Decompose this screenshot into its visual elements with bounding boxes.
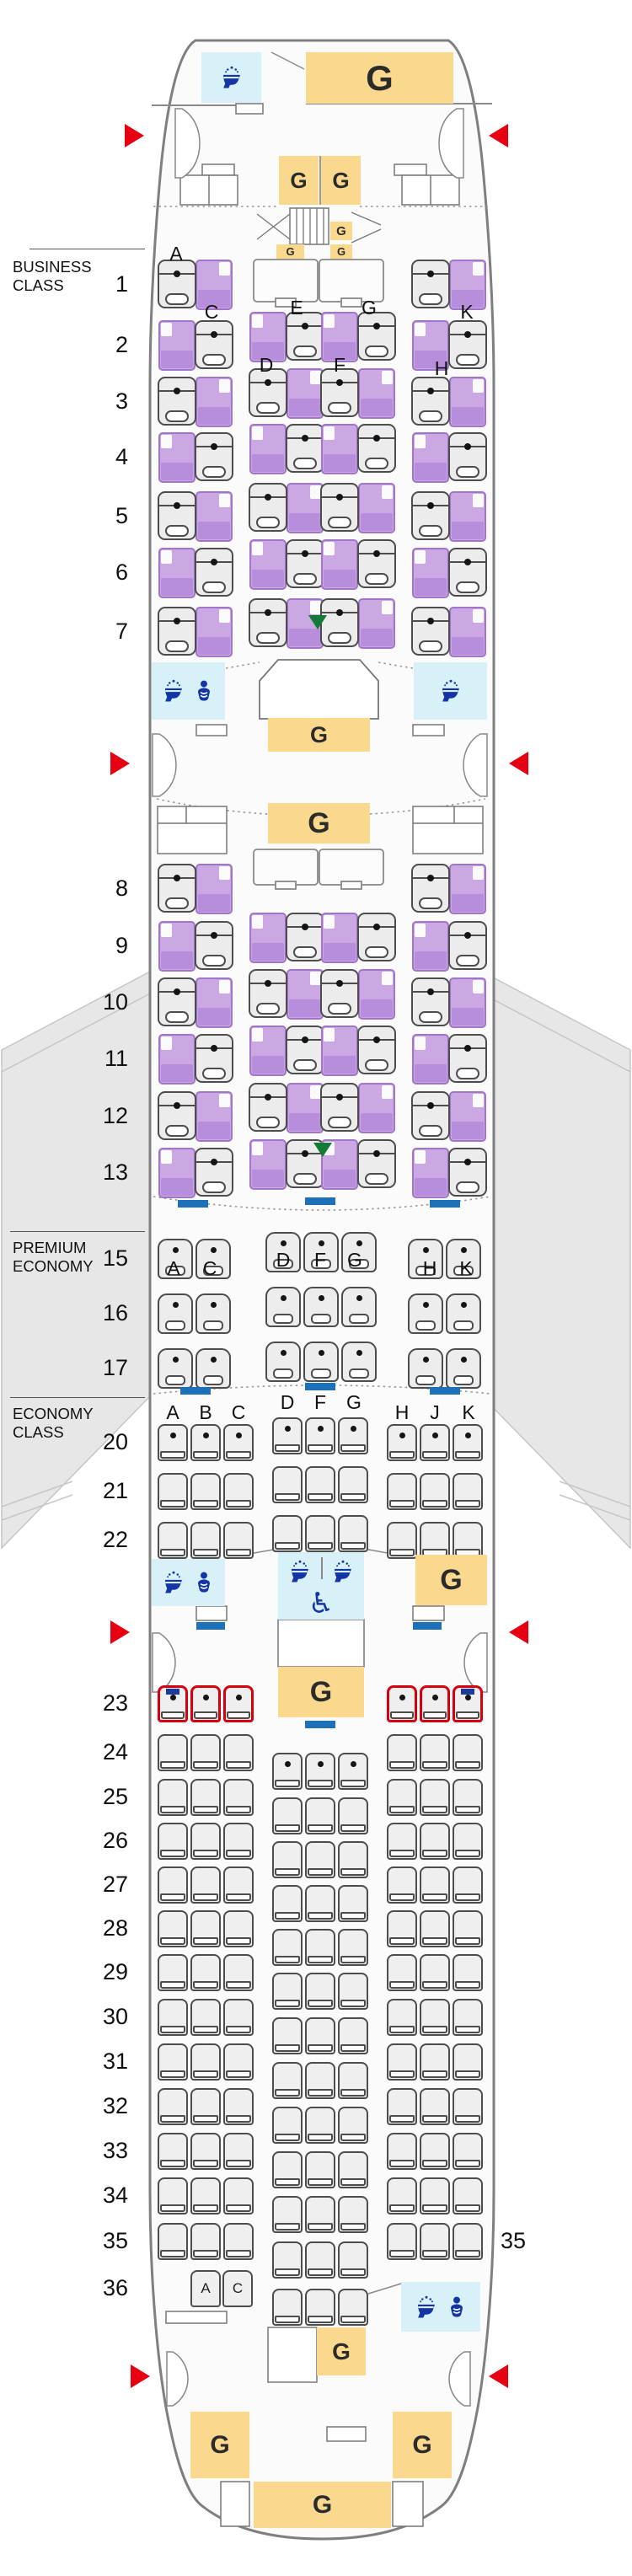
seat-9C[interactable] xyxy=(158,921,233,972)
seat-33A[interactable] xyxy=(158,2133,188,2170)
bassinet-bar-icon xyxy=(305,1197,335,1205)
seat-22J[interactable] xyxy=(420,1522,450,1559)
seat-bed-surface xyxy=(195,864,233,914)
seat-20C[interactable] xyxy=(223,1424,254,1461)
seat-13K[interactable] xyxy=(411,1148,487,1198)
bassinet-bar-icon xyxy=(196,1622,225,1630)
column-letter-A: A xyxy=(167,1257,179,1280)
seat-32D[interactable] xyxy=(272,2107,303,2144)
seat-chair xyxy=(158,1091,196,1140)
seat-chair xyxy=(448,1034,487,1083)
seat-29K[interactable] xyxy=(453,1954,483,1991)
seat-bed-surface xyxy=(321,1026,358,1076)
seat-4G[interactable] xyxy=(320,424,396,474)
seat-35A[interactable] xyxy=(158,2223,188,2260)
row-number-36: 36 xyxy=(88,2275,128,2301)
seat-26J[interactable] xyxy=(420,1823,450,1860)
seat-9G[interactable] xyxy=(320,913,396,963)
seat-35D[interactable] xyxy=(272,2241,303,2279)
seat-20G[interactable] xyxy=(338,1417,368,1454)
seat-4K[interactable] xyxy=(411,432,487,483)
seat-20A[interactable] xyxy=(158,1424,188,1461)
row-number-30: 30 xyxy=(88,2004,128,2030)
seat-22K[interactable] xyxy=(453,1522,483,1559)
seat-1H[interactable] xyxy=(411,260,487,310)
lavatory-toilets xyxy=(278,1554,364,1589)
seat-2K[interactable] xyxy=(411,320,487,371)
seat-28D[interactable] xyxy=(272,1929,303,1966)
seat-10F[interactable] xyxy=(320,969,396,1020)
seat-28F[interactable] xyxy=(305,1929,335,1966)
seat-24K[interactable] xyxy=(453,1734,483,1771)
seat-27D[interactable] xyxy=(272,1885,303,1922)
seat-26G[interactable] xyxy=(338,1841,368,1878)
seat-27B[interactable] xyxy=(190,1866,221,1904)
row-number-22: 22 xyxy=(88,1527,128,1553)
galley-label: G xyxy=(412,2431,431,2460)
seat-bed-surface xyxy=(358,368,395,419)
seat-22B[interactable] xyxy=(190,1522,221,1559)
seat-34H[interactable] xyxy=(387,2177,417,2215)
seat-28B[interactable] xyxy=(190,1910,221,1947)
seat-29J[interactable] xyxy=(420,1954,450,1991)
column-letter-C: C xyxy=(232,1401,246,1424)
bassinet-bar-icon xyxy=(413,1622,442,1630)
seat-34K[interactable] xyxy=(453,2177,483,2215)
seat-17G[interactable] xyxy=(341,1342,377,1382)
seat-ottoman xyxy=(202,955,226,967)
seat-29A[interactable] xyxy=(158,1954,188,1991)
seat-16G[interactable] xyxy=(341,1287,377,1327)
seat-35F[interactable] xyxy=(305,2241,335,2279)
seat-29H[interactable] xyxy=(387,1954,417,1991)
seat-29B[interactable] xyxy=(190,1954,221,1991)
row-number-35-right: 35 xyxy=(501,2228,541,2254)
toilet-icon xyxy=(438,678,463,704)
seat-29F[interactable] xyxy=(305,1973,335,2010)
seat-11C[interactable] xyxy=(158,1034,233,1084)
seat-chair xyxy=(158,377,196,426)
seat-letter: A xyxy=(201,2280,210,2297)
seat-17F[interactable] xyxy=(303,1342,339,1382)
seat-5H[interactable] xyxy=(411,491,487,542)
seat-35B[interactable] xyxy=(190,2223,221,2260)
seat-25K[interactable] xyxy=(453,1779,483,1816)
seat-ottoman xyxy=(365,573,388,585)
seat-21K[interactable] xyxy=(453,1473,483,1510)
seat-26H[interactable] xyxy=(387,1823,417,1860)
seat-10H[interactable] xyxy=(411,977,487,1028)
section-label-line: PREMIUM xyxy=(13,1239,94,1257)
seat-ottoman xyxy=(202,1068,226,1079)
seat-33K[interactable] xyxy=(453,2133,483,2170)
section-divider-economy xyxy=(10,1397,145,1398)
seat-bed-surface xyxy=(249,913,287,963)
seat-6K[interactable] xyxy=(411,548,487,598)
seat-24D[interactable] xyxy=(272,1753,303,1790)
section-divider-business xyxy=(29,249,145,249)
section-label-line: CLASS xyxy=(13,276,92,295)
seat-chair xyxy=(249,598,287,647)
seat-22A[interactable] xyxy=(158,1522,188,1559)
seat-16D[interactable] xyxy=(265,1287,301,1327)
baby-icon xyxy=(192,678,216,704)
seat-20K[interactable] xyxy=(453,1424,483,1461)
seat-25G[interactable] xyxy=(338,1797,368,1834)
seat-22G[interactable] xyxy=(338,1515,368,1552)
seat-22D[interactable] xyxy=(272,1515,303,1552)
row-number-5: 5 xyxy=(88,503,128,529)
galley-1: G xyxy=(279,156,319,205)
seat-32H[interactable] xyxy=(387,2088,417,2125)
seat-ottoman xyxy=(293,458,317,469)
seat-28G[interactable] xyxy=(338,1929,368,1966)
seat-chair xyxy=(158,864,196,913)
seat-17K[interactable] xyxy=(446,1348,481,1389)
seat-24F[interactable] xyxy=(305,1753,335,1790)
seat-ottoman xyxy=(328,1003,351,1015)
seat-21A[interactable] xyxy=(158,1473,188,1510)
seat-29D[interactable] xyxy=(272,1973,303,2010)
seat-1A[interactable] xyxy=(158,260,233,310)
row-number-28: 28 xyxy=(88,1915,128,1941)
seat-21J[interactable] xyxy=(420,1473,450,1510)
seat-16H[interactable] xyxy=(408,1293,443,1334)
seat-20H[interactable] xyxy=(387,1424,417,1461)
bassinet-bar-icon xyxy=(180,1387,211,1395)
seat-28K[interactable] xyxy=(453,1910,483,1947)
seat-6E[interactable] xyxy=(249,539,324,590)
seat-7F[interactable] xyxy=(320,598,396,649)
seat-30B[interactable] xyxy=(190,1999,221,2036)
seat-bed-surface xyxy=(249,539,287,590)
seat-30D[interactable] xyxy=(272,2017,303,2054)
seat-7A[interactable] xyxy=(158,607,233,657)
seat-35C[interactable] xyxy=(223,2223,254,2260)
seat-4E[interactable] xyxy=(249,424,324,474)
seat-12D[interactable] xyxy=(249,1083,324,1133)
toilet-icon xyxy=(330,1559,356,1584)
seat-16K[interactable] xyxy=(446,1293,481,1334)
seat-27C[interactable] xyxy=(223,1866,254,1904)
seat-31G[interactable] xyxy=(338,2062,368,2099)
seat-31H[interactable] xyxy=(387,2043,417,2081)
seat-ottoman xyxy=(419,410,442,422)
seat-ottoman xyxy=(419,897,442,909)
seat-26D[interactable] xyxy=(272,1841,303,1878)
seat-25D[interactable] xyxy=(272,1797,303,1834)
bassinet-triangle-icon xyxy=(308,615,327,629)
seat-23A[interactable] xyxy=(158,1685,188,1722)
galley-6: G xyxy=(268,718,370,752)
row-number-3: 3 xyxy=(88,388,128,415)
seat-7H[interactable] xyxy=(411,607,487,657)
row-number-25: 25 xyxy=(88,1784,128,1810)
seat-ottoman xyxy=(293,573,317,585)
seat-bed-surface xyxy=(412,921,449,972)
seat-24C[interactable] xyxy=(223,1734,254,1771)
seat-33G[interactable] xyxy=(338,2151,368,2188)
seat-30J[interactable] xyxy=(420,1999,450,2036)
row-number-27: 27 xyxy=(88,1872,128,1898)
seat-27F[interactable] xyxy=(305,1885,335,1922)
seat-bed-surface xyxy=(358,483,395,533)
column-letter-H: H xyxy=(395,1401,410,1424)
row-number-6: 6 xyxy=(88,560,128,586)
seat-9E[interactable] xyxy=(249,913,324,963)
seat-27J[interactable] xyxy=(420,1866,450,1904)
seat-31C[interactable] xyxy=(223,2043,254,2081)
seat-5F[interactable] xyxy=(320,483,396,533)
seat-4C[interactable] xyxy=(158,432,233,483)
seat-25B[interactable] xyxy=(190,1779,221,1816)
seat-10D[interactable] xyxy=(249,969,324,1020)
row-number-9: 9 xyxy=(88,933,128,959)
seat-31B[interactable] xyxy=(190,2043,221,2081)
seat-34B[interactable] xyxy=(190,2177,221,2215)
seat-32J[interactable] xyxy=(420,2088,450,2125)
seat-33B[interactable] xyxy=(190,2133,221,2170)
seat-26K[interactable] xyxy=(453,1823,483,1860)
seat-26C[interactable] xyxy=(223,1823,254,1860)
row-number-21: 21 xyxy=(88,1478,128,1504)
seat-25J[interactable] xyxy=(420,1779,450,1816)
column-letter-G: G xyxy=(362,297,377,319)
seat-34G[interactable] xyxy=(338,2196,368,2233)
seat-20J[interactable] xyxy=(420,1424,450,1461)
seat-8H[interactable] xyxy=(411,864,487,914)
seat-21C[interactable] xyxy=(223,1473,254,1510)
seat-ottoman xyxy=(202,354,226,366)
seat-30G[interactable] xyxy=(338,2017,368,2054)
seat-21F[interactable] xyxy=(305,1466,335,1503)
seat-26A[interactable] xyxy=(158,1823,188,1860)
galley-9: G xyxy=(278,1667,364,1717)
seat-bed-surface xyxy=(158,320,195,371)
column-letter-B: B xyxy=(199,1401,212,1424)
seat-17C[interactable] xyxy=(195,1348,231,1389)
row-number-11: 11 xyxy=(88,1046,128,1072)
seat-2C[interactable] xyxy=(158,320,233,371)
galley-label: G xyxy=(337,245,345,258)
seat-28H[interactable] xyxy=(387,1910,417,1947)
seat-34A[interactable] xyxy=(158,2177,188,2215)
seat-5D[interactable] xyxy=(249,483,324,533)
seat-chair xyxy=(357,913,396,961)
seat-30C[interactable] xyxy=(223,1999,254,2036)
seat-20F[interactable] xyxy=(305,1417,335,1454)
seat-35K[interactable] xyxy=(453,2223,483,2260)
seat-33C[interactable] xyxy=(223,2133,254,2170)
seat-22F[interactable] xyxy=(305,1515,335,1552)
column-letter-J: J xyxy=(430,1401,440,1424)
seat-ottoman xyxy=(419,1125,442,1137)
seat-24H[interactable] xyxy=(387,1734,417,1771)
seat-chair xyxy=(195,432,233,481)
column-letter-H: H xyxy=(423,1257,437,1280)
seat-32F[interactable] xyxy=(305,2107,335,2144)
seat-27H[interactable] xyxy=(387,1866,417,1904)
seat-28A[interactable] xyxy=(158,1910,188,1947)
exit-arrow-icon xyxy=(509,1620,528,1644)
seat-36F[interactable] xyxy=(305,2289,335,2326)
seat-24G[interactable] xyxy=(338,1753,368,1790)
seat-33J[interactable] xyxy=(420,2133,450,2170)
galley-label: G xyxy=(366,58,394,99)
seat-ottoman xyxy=(456,466,479,478)
seat-11E[interactable] xyxy=(249,1026,324,1076)
column-letter-A: A xyxy=(166,1401,179,1424)
seat-bed-surface xyxy=(358,1083,395,1133)
seat-20D[interactable] xyxy=(272,1417,303,1454)
seat-36A[interactable]: A xyxy=(190,2270,221,2307)
seat-chair xyxy=(357,1026,396,1074)
galley-12: G xyxy=(393,2412,452,2478)
seat-ottoman xyxy=(365,1059,388,1071)
seat-31D[interactable] xyxy=(272,2062,303,2099)
seat-24J[interactable] xyxy=(420,1734,450,1771)
seat-10A[interactable] xyxy=(158,977,233,1028)
seat-23B[interactable] xyxy=(190,1685,221,1722)
seat-35J[interactable] xyxy=(420,2223,450,2260)
seat-bed-surface xyxy=(158,921,195,972)
seat-25C[interactable] xyxy=(223,1779,254,1816)
seat-34J[interactable] xyxy=(420,2177,450,2215)
seat-16A[interactable] xyxy=(158,1293,193,1334)
seat-32B[interactable] xyxy=(190,2088,221,2125)
seat-22C[interactable] xyxy=(223,1522,254,1559)
seat-31A[interactable] xyxy=(158,2043,188,2081)
seat-28J[interactable] xyxy=(420,1910,450,1947)
seat-26B[interactable] xyxy=(190,1823,221,1860)
seat-29C[interactable] xyxy=(223,1954,254,1991)
seat-21G[interactable] xyxy=(338,1466,368,1503)
seat-31J[interactable] xyxy=(420,2043,450,2081)
seat-30A[interactable] xyxy=(158,1999,188,2036)
seat-5A[interactable] xyxy=(158,491,233,542)
seat-3H[interactable] xyxy=(411,377,487,427)
seat-34F[interactable] xyxy=(305,2196,335,2233)
seat-33F[interactable] xyxy=(305,2151,335,2188)
seat-3A[interactable] xyxy=(158,377,233,427)
galley-label: G xyxy=(332,168,349,194)
seat-31F[interactable] xyxy=(305,2062,335,2099)
seat-3F[interactable] xyxy=(320,368,396,419)
seat-23C[interactable] xyxy=(223,1685,254,1722)
seat-30H[interactable] xyxy=(387,1999,417,2036)
seat-ottoman xyxy=(293,946,317,958)
seat-11G[interactable] xyxy=(320,1026,396,1076)
seat-9K[interactable] xyxy=(411,921,487,972)
seat-bed-surface xyxy=(321,539,358,590)
seat-36D[interactable] xyxy=(272,2289,303,2326)
seat-27K[interactable] xyxy=(453,1866,483,1904)
seat-17D[interactable] xyxy=(265,1342,301,1382)
seat-26F[interactable] xyxy=(305,1841,335,1878)
seat-31K[interactable] xyxy=(453,2043,483,2081)
column-letter-C: C xyxy=(203,1257,217,1280)
seat-6G[interactable] xyxy=(320,539,396,590)
seat-27A[interactable] xyxy=(158,1866,188,1904)
column-letter-K: K xyxy=(459,1257,472,1280)
seat-17H[interactable] xyxy=(408,1348,443,1389)
seat-21H[interactable] xyxy=(387,1473,417,1510)
seat-chair xyxy=(158,607,196,656)
seat-12F[interactable] xyxy=(320,1083,396,1133)
seat-12A[interactable] xyxy=(158,1091,233,1142)
seat-ottoman xyxy=(202,1181,226,1193)
seat-23J[interactable] xyxy=(420,1685,450,1722)
seat-chair xyxy=(448,1148,487,1197)
seat-32C[interactable] xyxy=(223,2088,254,2125)
seat-35G[interactable] xyxy=(338,2241,368,2279)
seat-34D[interactable] xyxy=(272,2196,303,2233)
toilet-icon xyxy=(161,1570,186,1595)
seat-13C[interactable] xyxy=(158,1148,233,1198)
seat-chair xyxy=(158,260,196,308)
seat-25F[interactable] xyxy=(305,1797,335,1834)
seat-bed-surface xyxy=(158,432,195,483)
seat-16F[interactable] xyxy=(303,1287,339,1327)
seat-12H[interactable] xyxy=(411,1091,487,1142)
column-letter-D: D xyxy=(276,1249,291,1272)
bassinet-bar-icon xyxy=(305,1721,335,1728)
seat-29G[interactable] xyxy=(338,1973,368,2010)
seat-35H[interactable] xyxy=(387,2223,417,2260)
seat-23H[interactable] xyxy=(387,1685,417,1722)
seat-24A[interactable] xyxy=(158,1734,188,1771)
seat-ottoman xyxy=(165,897,189,909)
seat-30K[interactable] xyxy=(453,1999,483,2036)
seat-25A[interactable] xyxy=(158,1779,188,1816)
seat-30F[interactable] xyxy=(305,2017,335,2054)
seat-20B[interactable] xyxy=(190,1424,221,1461)
seat-33H[interactable] xyxy=(387,2133,417,2170)
seat-36G[interactable] xyxy=(338,2289,368,2326)
row-number-24: 24 xyxy=(88,1739,128,1765)
seat-32G[interactable] xyxy=(338,2107,368,2144)
seat-34C[interactable] xyxy=(223,2177,254,2215)
exit-arrow-icon xyxy=(489,124,508,147)
seat-bed-surface xyxy=(249,424,287,474)
exit-arrow-icon xyxy=(131,2364,150,2388)
seat-6C[interactable] xyxy=(158,548,233,598)
seat-28C[interactable] xyxy=(223,1910,254,1947)
seat-22H[interactable] xyxy=(387,1522,417,1559)
seat-32K[interactable] xyxy=(453,2088,483,2125)
seat-24B[interactable] xyxy=(190,1734,221,1771)
seat-33D[interactable] xyxy=(272,2151,303,2188)
seat-11K[interactable] xyxy=(411,1034,487,1084)
seat-25H[interactable] xyxy=(387,1779,417,1816)
seat-21B[interactable] xyxy=(190,1473,221,1510)
seat-32A[interactable] xyxy=(158,2088,188,2125)
galley-label: G xyxy=(308,807,329,840)
seat-36C[interactable]: C xyxy=(222,2270,253,2307)
row-number-10: 10 xyxy=(88,989,128,1015)
seat-2G[interactable] xyxy=(320,312,396,362)
seat-ottoman xyxy=(256,402,280,414)
seat-8A[interactable] xyxy=(158,864,233,914)
seat-17A[interactable] xyxy=(158,1348,193,1389)
seat-23K[interactable] xyxy=(453,1685,483,1722)
galley-10: G xyxy=(317,2327,366,2375)
seat-27G[interactable] xyxy=(338,1885,368,1922)
seat-21D[interactable] xyxy=(272,1466,303,1503)
seat-16C[interactable] xyxy=(195,1293,231,1334)
column-letter-K: K xyxy=(460,301,473,324)
column-letter-F: F xyxy=(314,1249,326,1272)
